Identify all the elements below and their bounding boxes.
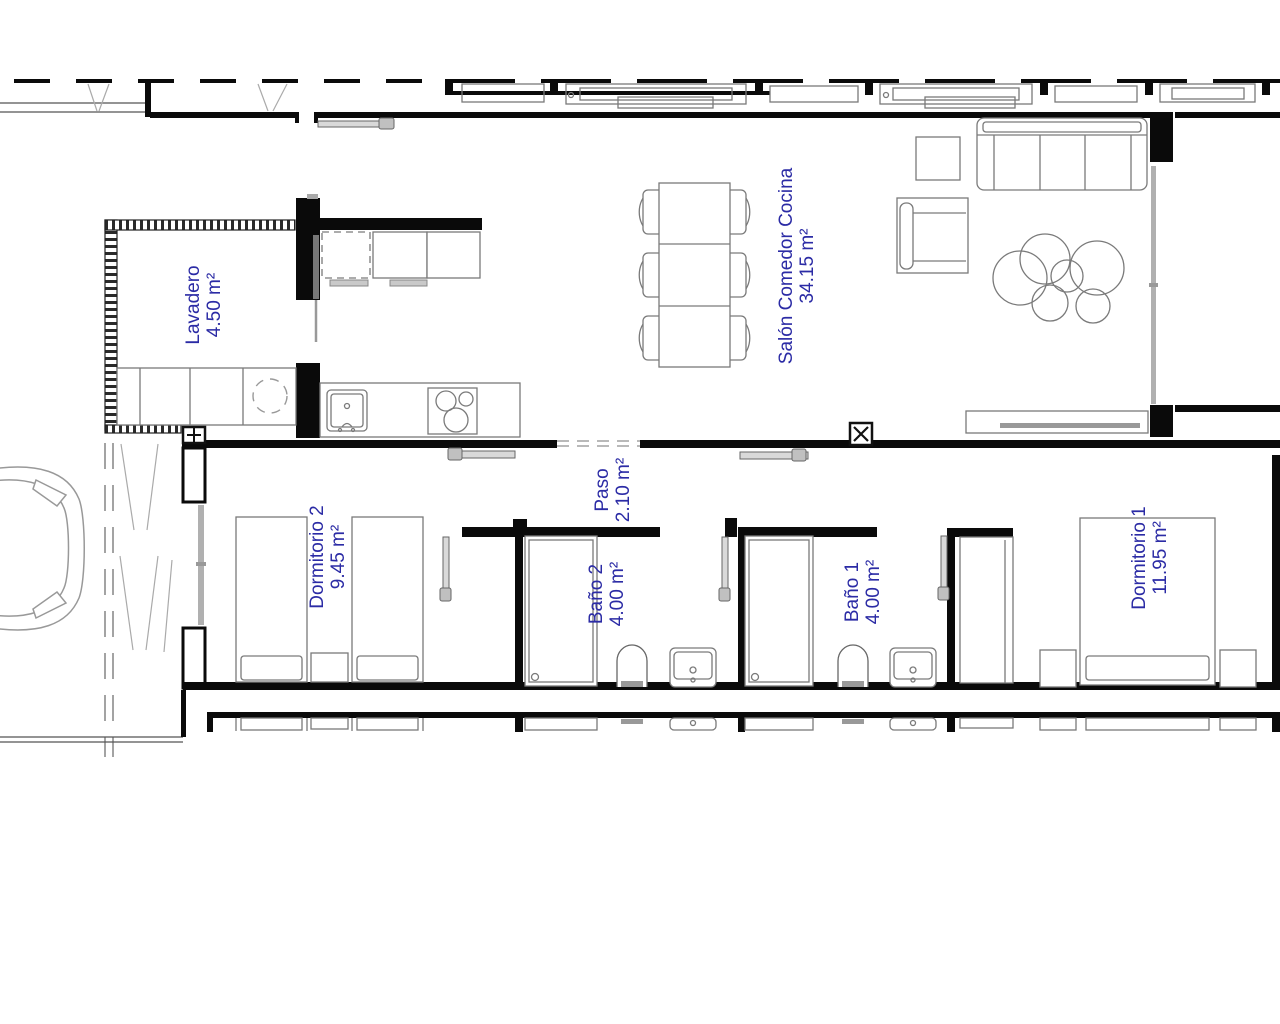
nightstand <box>1040 650 1076 687</box>
terrace <box>1149 166 1280 437</box>
sliding-door <box>719 537 730 601</box>
neighbor-unit-top <box>0 79 1280 117</box>
kitchen-cabinet <box>427 232 480 278</box>
room-name: Lavadero <box>183 265 204 344</box>
pillow <box>241 656 302 680</box>
plus-symbol <box>183 427 205 443</box>
room-name: Dormitorio 2 <box>307 505 328 608</box>
shower <box>745 536 813 686</box>
sliding-door <box>938 536 949 600</box>
room-label-dormitorio1: Dormitorio 1 11.95 m² <box>1129 506 1171 609</box>
floor-plan-drawing <box>0 0 1280 1024</box>
room-label-salon: Salón Comedor Cocina 34.15 m² <box>776 168 818 364</box>
kitchen <box>296 194 520 438</box>
room-label-bano2: Baño 2 4.00 m² <box>586 562 628 626</box>
room-name: Paso <box>592 458 613 522</box>
room-name: Dormitorio 1 <box>1129 506 1150 609</box>
pillow <box>1086 656 1209 680</box>
room-label-bano1: Baño 1 4.00 m² <box>842 560 884 624</box>
x-symbol <box>850 423 872 445</box>
room-area: 4.50 m² <box>204 265 225 344</box>
washbasin <box>890 648 936 687</box>
neighbor-unit-bottom <box>181 690 1280 737</box>
sofa <box>977 118 1147 190</box>
kitchen-counter <box>320 383 520 437</box>
room-area: 9.45 m² <box>328 505 349 608</box>
room-name: Baño 2 <box>586 562 607 626</box>
fridge <box>322 232 370 278</box>
room-area: 11.95 m² <box>1150 506 1171 609</box>
corridor-door <box>740 449 808 461</box>
room-name: Salón Comedor Cocina <box>776 168 797 364</box>
bedroom1-furniture <box>960 518 1256 687</box>
bathroom1-fixtures <box>745 536 936 687</box>
room-name: Baño 1 <box>842 560 863 624</box>
room-area: 34.15 m² <box>797 168 818 364</box>
kitchen-cabinet <box>373 232 427 278</box>
car <box>0 467 84 630</box>
nightstand <box>311 653 348 682</box>
toilet <box>838 645 868 687</box>
toilet <box>617 645 647 687</box>
dining-table <box>659 183 730 367</box>
headlight-icon <box>33 592 66 618</box>
living-dining-area <box>639 118 1148 433</box>
headlight-icon <box>33 480 66 506</box>
wardrobe <box>960 537 1013 683</box>
floor-plan-page: Lavadero 4.50 m² Salón Comedor Cocina 34… <box>0 0 1280 1024</box>
room-area: 4.00 m² <box>607 562 628 626</box>
plant <box>993 234 1124 323</box>
room-label-paso: Paso 2.10 m² <box>592 458 634 522</box>
entry-door-handle-icon <box>379 118 394 129</box>
driveway-markings <box>0 443 183 757</box>
tv-sideboard <box>966 411 1148 433</box>
side-table <box>916 137 960 180</box>
pillow <box>357 656 418 680</box>
room-area: 4.00 m² <box>863 560 884 624</box>
room-label-lavadero: Lavadero 4.50 m² <box>183 265 225 344</box>
sliding-door <box>440 537 451 601</box>
armchair <box>897 198 968 273</box>
washbasin <box>670 648 716 687</box>
corridor-door <box>448 448 515 460</box>
entry-door <box>318 118 394 129</box>
room-area: 2.10 m² <box>613 458 634 522</box>
nightstand <box>1220 650 1256 687</box>
laundry-counter <box>117 368 296 425</box>
room-label-dormitorio2: Dormitorio 2 9.45 m² <box>307 505 349 608</box>
